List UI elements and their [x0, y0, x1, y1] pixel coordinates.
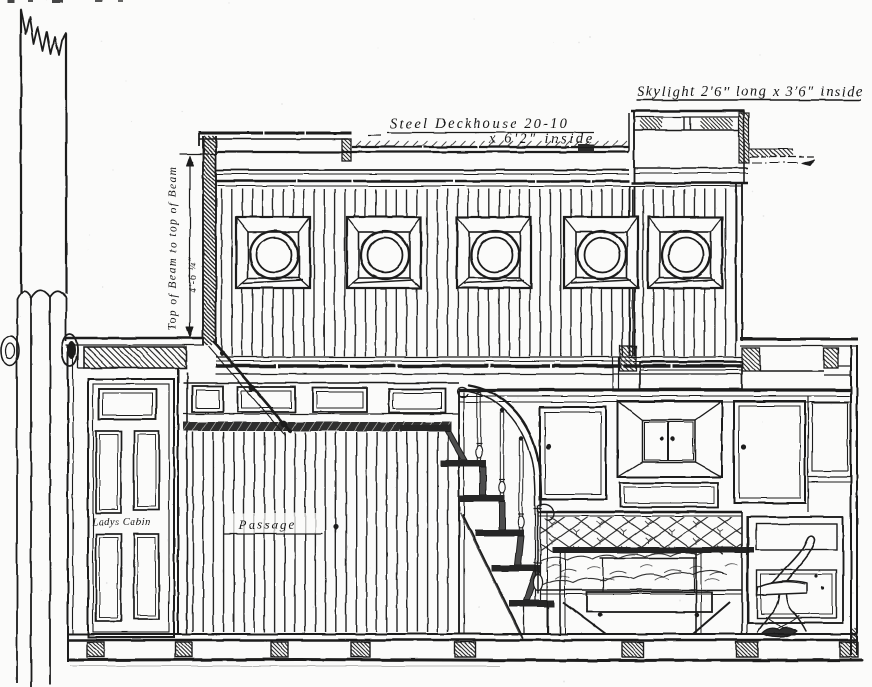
svg-text:Steel Deckhouse 20-10: Steel Deckhouse 20-10 [390, 116, 569, 132]
svg-text:Ladys Cabin: Ladys Cabin [91, 517, 151, 528]
svg-text:x 6'2″ inside: x 6'2″ inside [488, 131, 595, 147]
svg-text:Passage: Passage [238, 517, 296, 532]
svg-text:Top of Beam to top of Beam: Top of Beam to top of Beam [167, 166, 179, 330]
svg-text:4'-6 ¼″: 4'-6 ¼″ [188, 256, 199, 293]
svg-text:Skylight 2'6″ long x 3'6″ insi: Skylight 2'6″ long x 3'6″ inside [637, 84, 864, 100]
